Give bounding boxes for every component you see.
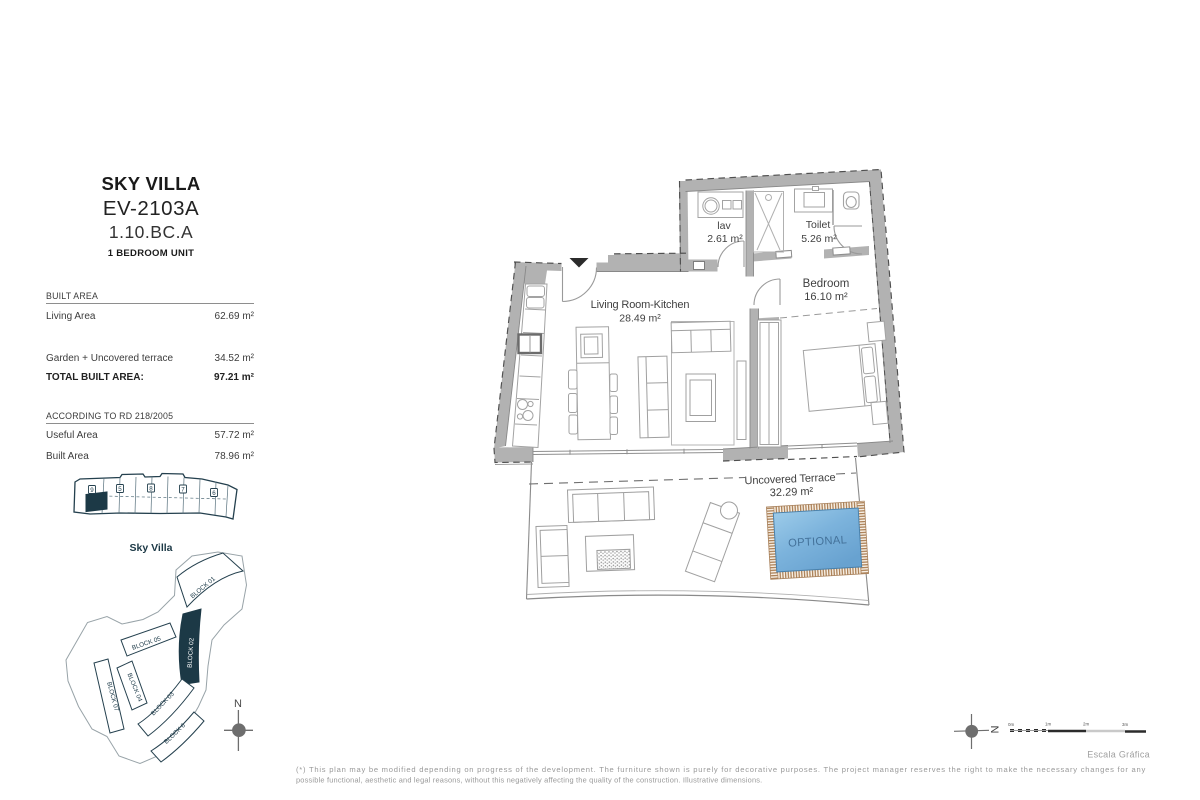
- svg-text:62.69 m²: 62.69 m²: [215, 311, 255, 322]
- svg-text:Useful Area: Useful Area: [46, 430, 98, 441]
- svg-text:Garden + Uncovered terrace: Garden + Uncovered terrace: [46, 353, 173, 364]
- svg-text:Built Area: Built Area: [46, 451, 89, 462]
- svg-text:2.61 m²: 2.61 m²: [707, 233, 743, 245]
- svg-text:BUILT AREA: BUILT AREA: [46, 291, 98, 301]
- svg-text:Escala Gráfica: Escala Gráfica: [1087, 750, 1150, 760]
- svg-text:Sky Villa: Sky Villa: [129, 542, 172, 554]
- svg-text:78.96 m²: 78.96 m²: [215, 451, 255, 462]
- svg-text:97.21 m²: 97.21 m²: [214, 372, 255, 383]
- svg-text:5.26 m²: 5.26 m²: [801, 233, 837, 245]
- svg-text:Toilet: Toilet: [806, 219, 831, 231]
- svg-text:16.10 m²: 16.10 m²: [804, 291, 848, 303]
- svg-text:EV-2103A: EV-2103A: [103, 197, 199, 220]
- svg-text:0m: 0m: [1008, 722, 1015, 727]
- svg-text:Living Area: Living Area: [46, 311, 96, 322]
- svg-text:possible functional, aesthetic: possible functional, aesthetic and legal…: [296, 776, 762, 785]
- svg-text:28.49 m²: 28.49 m²: [619, 313, 661, 325]
- svg-text:9: 9: [90, 487, 94, 494]
- svg-text:32.29 m²: 32.29 m²: [770, 486, 814, 500]
- svg-text:34.52 m²: 34.52 m²: [215, 353, 255, 364]
- svg-text:Living Room-Kitchen: Living Room-Kitchen: [591, 299, 690, 311]
- svg-text:7: 7: [181, 486, 185, 493]
- svg-text:lav: lav: [717, 220, 731, 232]
- svg-text:3m: 3m: [1122, 722, 1129, 727]
- svg-text:Bedroom: Bedroom: [803, 278, 850, 290]
- svg-text:N: N: [988, 726, 1000, 734]
- svg-text:57.72 m²: 57.72 m²: [215, 430, 255, 441]
- svg-text:SKY VILLA: SKY VILLA: [102, 173, 201, 194]
- svg-text:5: 5: [118, 486, 122, 493]
- svg-text:Uncovered Terrace: Uncovered Terrace: [744, 472, 835, 487]
- svg-text:TOTAL BUILT AREA:: TOTAL BUILT AREA:: [46, 372, 144, 383]
- svg-text:1m: 1m: [1045, 722, 1052, 727]
- svg-text:1 BEDROOM UNIT: 1 BEDROOM UNIT: [108, 248, 195, 259]
- svg-text:2m: 2m: [1083, 722, 1090, 727]
- svg-text:(*) This plan may be modified: (*) This plan may be modified depending …: [296, 765, 1146, 774]
- svg-text:N: N: [234, 698, 242, 710]
- svg-text:6: 6: [212, 490, 216, 497]
- svg-text:8: 8: [149, 485, 153, 492]
- svg-text:ACCORDING TO RD 218/2005: ACCORDING TO RD 218/2005: [46, 411, 173, 421]
- svg-text:1.10.BC.A: 1.10.BC.A: [109, 222, 193, 242]
